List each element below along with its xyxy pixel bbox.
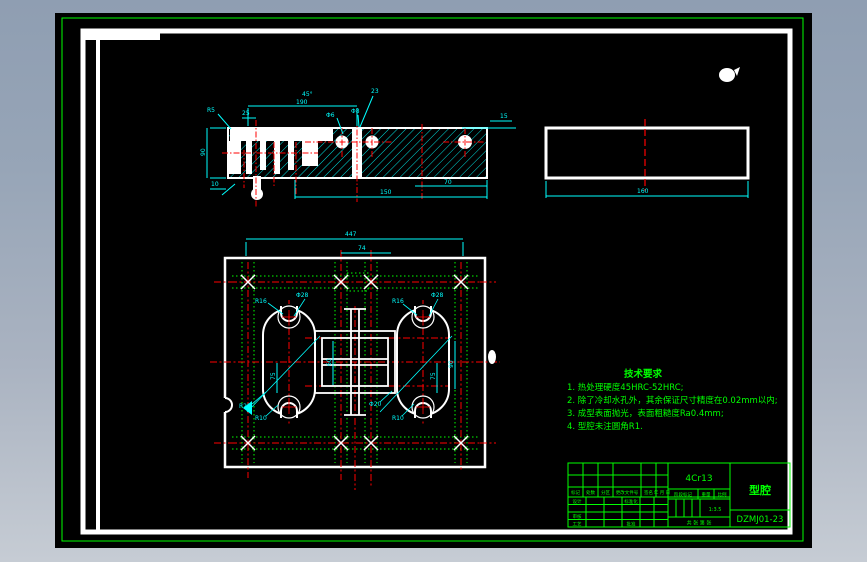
sheet-info: 共 张 第 张 (687, 520, 712, 527)
stage-header-cell: 重量 (702, 491, 711, 498)
tech-requirements-title: 技术要求 (624, 368, 663, 380)
dim-label: 74 (358, 245, 366, 252)
rev-header-cell: 更改文件号 (616, 489, 639, 496)
scale-value: 1:3.5 (709, 507, 722, 513)
dim-label: Φ28 (431, 292, 444, 299)
dim-label: Φ20 (369, 401, 382, 408)
dim-label: 60 (326, 358, 333, 366)
dim-label: 447 (345, 231, 357, 238)
dim-label: Φ8 (351, 108, 360, 115)
drawing-number: DZMJ01-23 (737, 515, 784, 525)
dim-label: 190 (296, 99, 308, 106)
rev-header-cell: 签名 (644, 489, 653, 496)
stage-header-cell: 比例 (718, 491, 727, 498)
dim-label: R16 (255, 298, 267, 305)
dim-label: R10 (255, 415, 267, 422)
rev-header-cell: 处数 (586, 489, 595, 496)
role-label: 批准 (627, 521, 636, 528)
dim-label: 160 (637, 188, 649, 195)
dim-label: R25 (239, 403, 251, 410)
dim-label: 10 (211, 181, 219, 188)
dim-label: 90 (200, 148, 207, 156)
material-label: 4Cr13 (685, 474, 712, 484)
dim-label: 25 (242, 110, 250, 117)
stage-header-cell: 阶段标记 (674, 491, 692, 498)
dim-label: Φ6 (326, 112, 335, 119)
dim-label: 150 (380, 189, 392, 196)
dim-label: Φ28 (296, 292, 309, 299)
side-marker (488, 350, 496, 364)
role-label: 标准化 (624, 498, 638, 505)
part-name: 型腔 (749, 483, 771, 497)
sprue-puller-pin (251, 188, 263, 200)
rev-header-cell: 年 月 日 (654, 489, 670, 496)
dim-label: 90 (448, 360, 455, 368)
rev-header-cell: 标记 (571, 489, 580, 496)
dim-label: 23 (371, 88, 379, 95)
rev-header-cell: 分区 (601, 489, 610, 496)
cad-drawing: 190 25 45° 23 Φ6 Φ8 90 R5 15 150 70 10 1… (0, 0, 867, 562)
dim-label: R10 (392, 415, 404, 422)
dim-label: 75 (270, 372, 277, 380)
tech-requirement-item: 4. 型腔未注圆角R1. (567, 421, 643, 432)
tech-requirement-item: 3. 成型表面抛光，表面粗糙度Ra0.4mm; (567, 408, 724, 419)
dim-label: 45° (302, 91, 313, 98)
dim-label: R5 (207, 107, 215, 114)
role-label: 审核 (573, 513, 582, 520)
dim-label: R16 (392, 298, 404, 305)
tech-requirement-item: 2. 除了冷却水孔外，其余保证尺寸精度在0.02mm以内; (567, 395, 778, 406)
dim-label: 70 (444, 179, 452, 186)
cad-viewport-window: 190 25 45° 23 Φ6 Φ8 90 R5 15 150 70 10 1… (0, 0, 867, 562)
role-label: 设计 (573, 498, 582, 505)
dim-label: 75 (430, 372, 437, 380)
tech-requirement-item: 1. 热处理硬度45HRC-52HRC; (567, 382, 684, 393)
role-label: 工艺 (573, 522, 582, 528)
dim-label: 15 (500, 113, 508, 120)
